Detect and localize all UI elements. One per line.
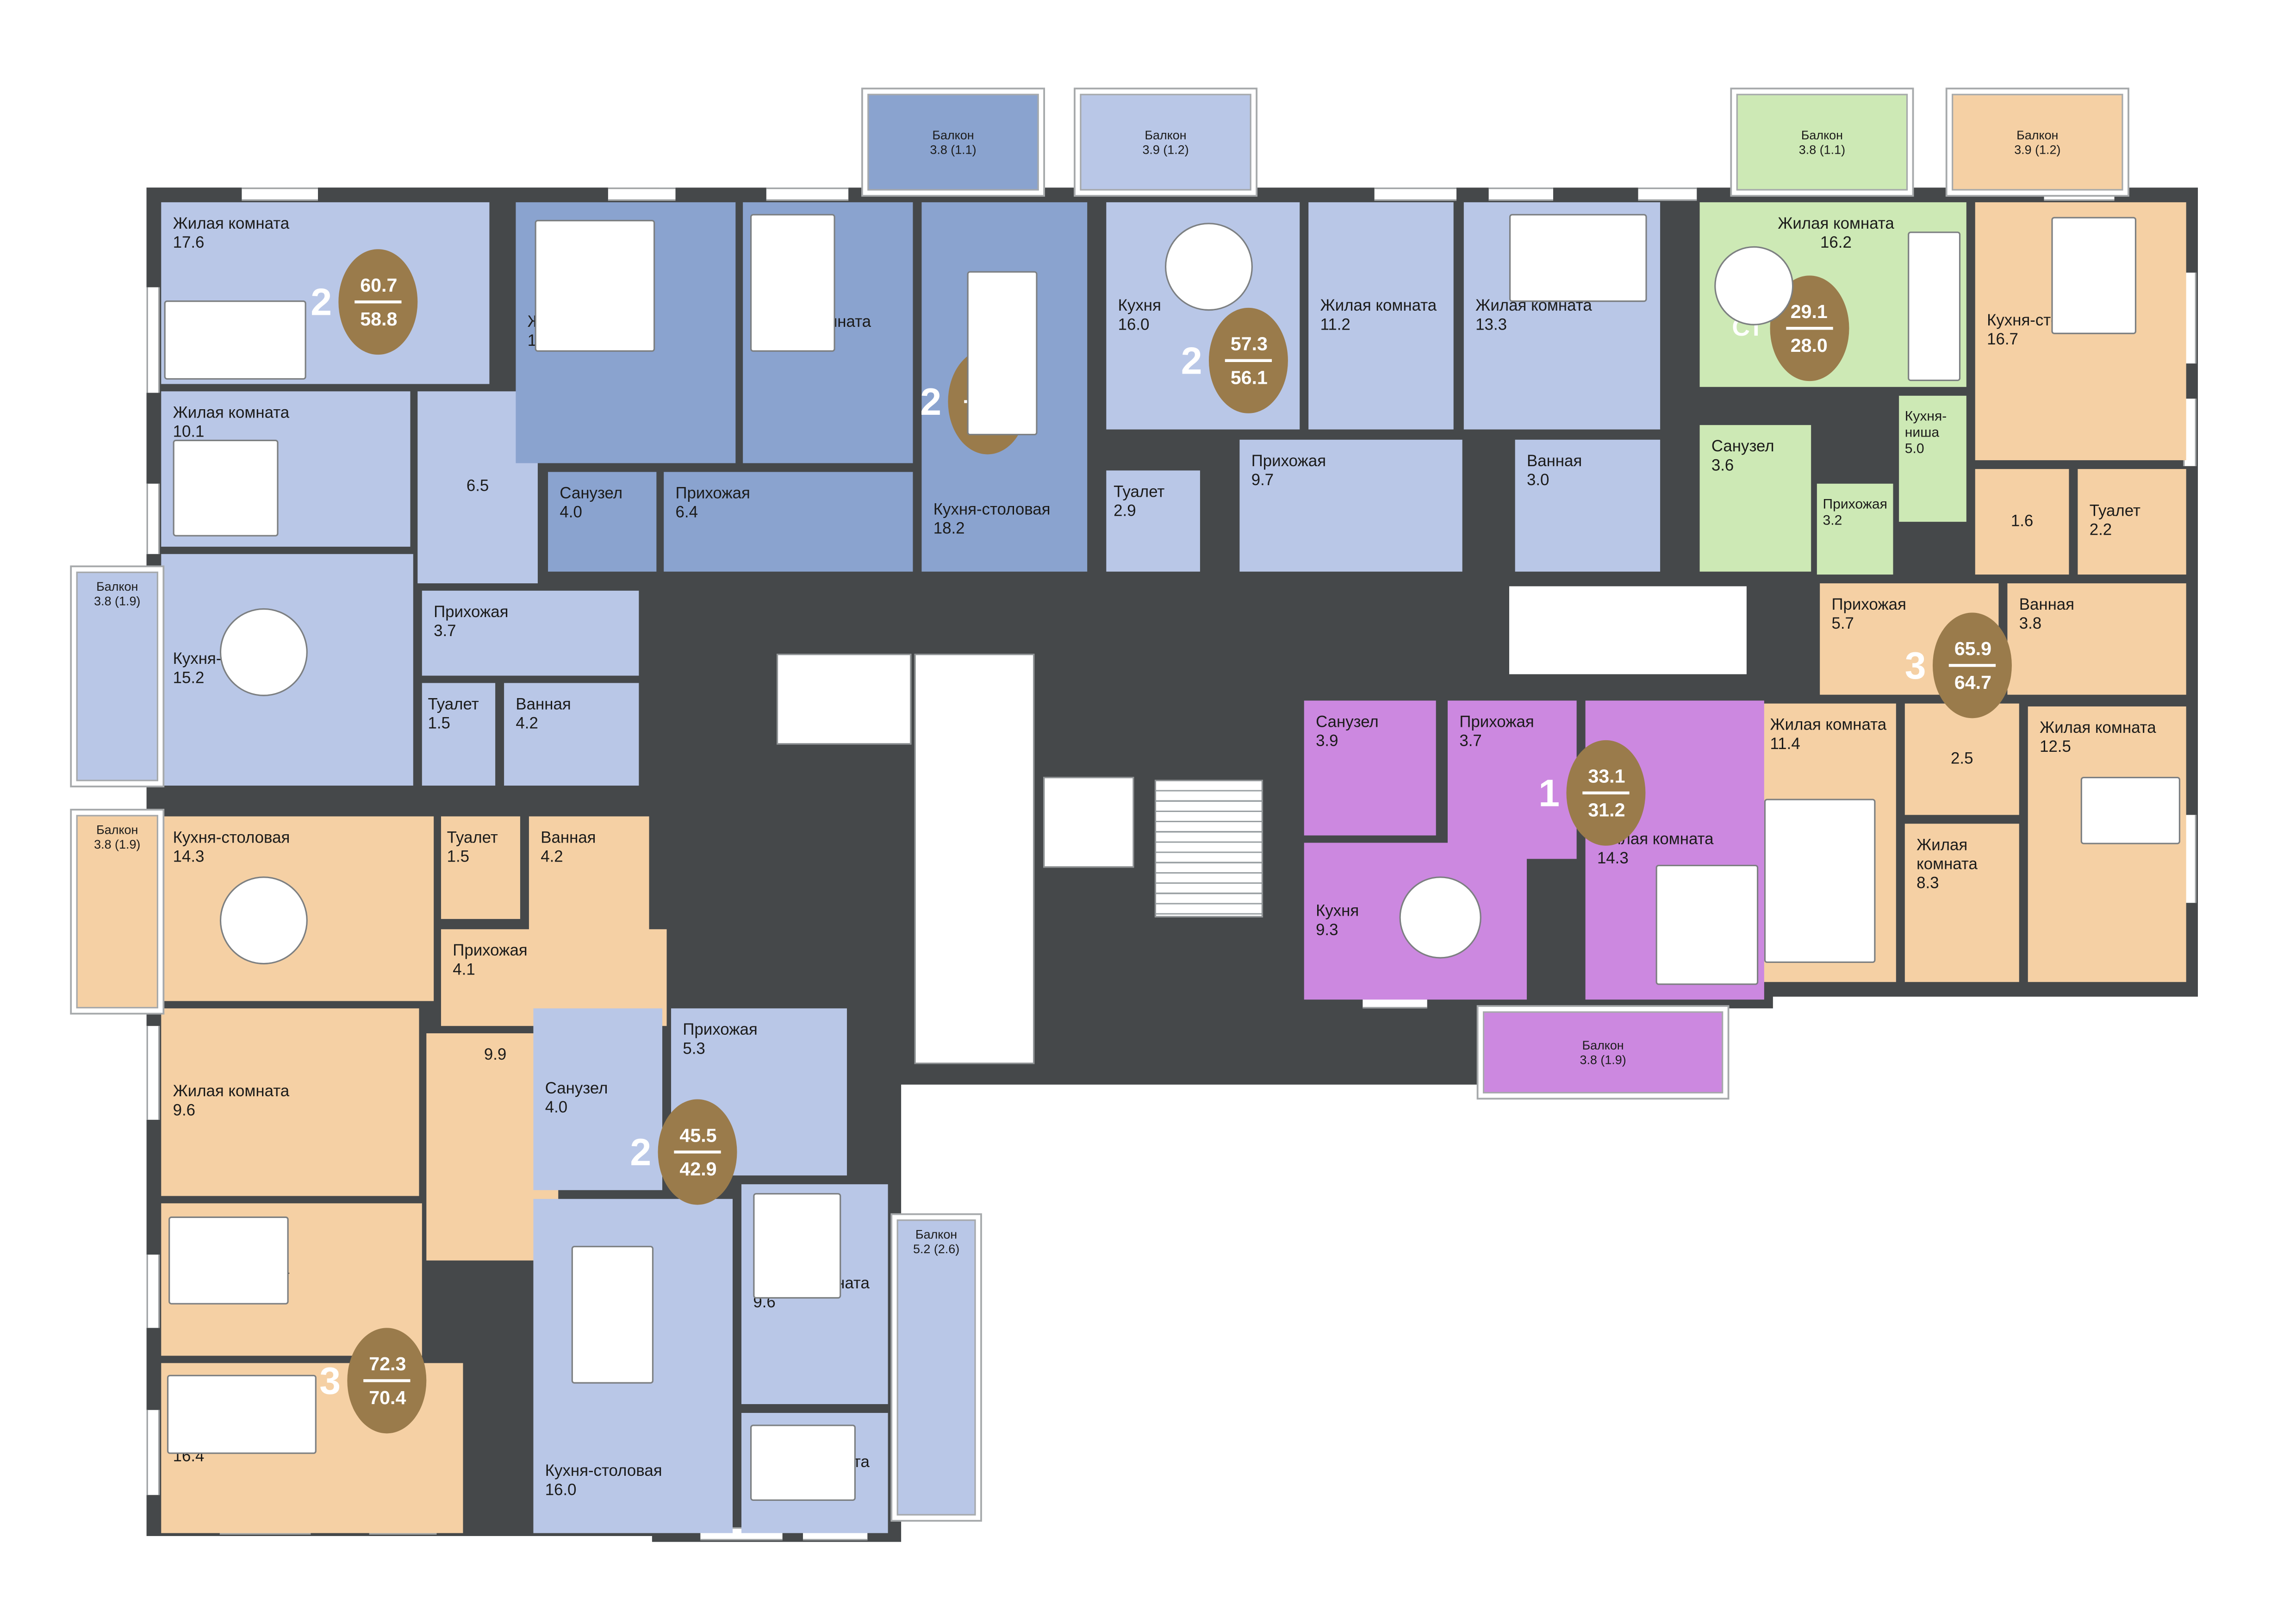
room-area: 3.8 (1.1) bbox=[930, 142, 976, 157]
room-name: Туалет bbox=[2090, 503, 2140, 522]
room-name: Балкон bbox=[2016, 127, 2058, 142]
badge-area-living: 64.7 bbox=[1954, 671, 1991, 693]
room-name: Санузел bbox=[545, 1080, 608, 1099]
apt6-badge: 3 72.3 70.4 bbox=[319, 1328, 427, 1433]
badge-areas: 57.3 56.1 bbox=[1209, 308, 1288, 413]
room-name: Туалет bbox=[428, 696, 479, 715]
core-corridor bbox=[915, 654, 1035, 1064]
room-area: 1.5 bbox=[447, 849, 469, 868]
room-area: 3.9 bbox=[1316, 733, 1338, 752]
apt4-corridor-2-5: 2.5 bbox=[1905, 704, 2019, 815]
room-name: Кухня-столовая bbox=[933, 501, 1051, 520]
apt6-living-room-9-6: Жилая комната 9.6 bbox=[161, 1008, 419, 1196]
room-name: Санузел bbox=[560, 485, 622, 504]
room-name: Прихожая bbox=[1831, 597, 1906, 616]
window bbox=[608, 187, 676, 200]
furniture-dining-table bbox=[1400, 876, 1481, 958]
room-name: Ванная bbox=[516, 696, 571, 715]
room-area: 3.8 (1.9) bbox=[94, 837, 140, 852]
apt0-badge: 2 60.7 58.8 bbox=[311, 249, 418, 355]
furniture-dining-table bbox=[2051, 217, 2136, 334]
furniture-sofa bbox=[1908, 231, 1960, 381]
room-name: Прихожая bbox=[676, 485, 750, 504]
apt3-kitchen-niche-5-0: Кухня-ниша 5.0 bbox=[1899, 396, 1966, 522]
room-area: 1.6 bbox=[2011, 512, 2033, 531]
window bbox=[147, 287, 160, 393]
room-name: Балкон bbox=[1145, 127, 1186, 142]
room-name: Ванная bbox=[1527, 453, 1582, 472]
badge-areas: 60.7 58.8 bbox=[339, 249, 418, 355]
room-area: 16.2 bbox=[1820, 234, 1852, 253]
apt4-balcony: Балкон 3.9 (1.2) bbox=[1952, 94, 2123, 191]
furniture-bed bbox=[753, 1193, 841, 1299]
room-area: 9.3 bbox=[1316, 921, 1338, 940]
room-name: Жилая комната bbox=[1770, 717, 1887, 736]
entrance-vestibule bbox=[777, 654, 911, 744]
badge-area-living: 31.2 bbox=[1588, 799, 1625, 820]
room-name: Прихожая bbox=[434, 604, 508, 623]
room-name: Балкон bbox=[932, 127, 974, 142]
badge-area-total: 29.1 bbox=[1791, 301, 1828, 323]
apt3-hallway-3-2: Прихожая 3.2 bbox=[1817, 484, 1893, 575]
badge-divider bbox=[364, 1380, 411, 1382]
furniture-sofa bbox=[164, 300, 306, 380]
apt0-toilet-1-5: Туалет 1.5 bbox=[422, 683, 495, 786]
room-area: 4.1 bbox=[453, 962, 475, 981]
room-name: Балкон bbox=[1582, 1037, 1624, 1052]
room-area: 3.6 bbox=[1711, 457, 1734, 476]
room-area: 9.9 bbox=[484, 1047, 506, 1066]
room-name: Прихожая bbox=[1823, 497, 1887, 513]
room-name: Жилая комната bbox=[173, 1083, 290, 1102]
room-area: 5.0 bbox=[1905, 442, 1924, 458]
room-name: Ванная bbox=[2019, 597, 2074, 616]
apt2-toilet-2-9: Туалет 2.9 bbox=[1106, 470, 1200, 571]
badge-divider bbox=[355, 301, 402, 303]
badge-areas: 33.1 31.2 bbox=[1567, 740, 1646, 846]
furniture-dining-table bbox=[967, 271, 1038, 436]
window bbox=[147, 1410, 160, 1495]
badge-area-total: 72.3 bbox=[369, 1353, 406, 1375]
badge-room-count: 2 bbox=[311, 279, 332, 325]
apt6-toilet-1-5: Туалет 1.5 bbox=[441, 816, 520, 919]
window bbox=[1489, 187, 1553, 200]
room-area: 3.8 (1.1) bbox=[1799, 142, 1845, 157]
room-area: 5.7 bbox=[1831, 616, 1854, 635]
furniture-bed bbox=[535, 220, 655, 352]
room-area: 11.4 bbox=[1770, 736, 1800, 755]
badge-divider bbox=[675, 1151, 722, 1153]
apt5-balcony: Балкон 3.8 (1.9) bbox=[1483, 1012, 1723, 1093]
furniture-bed bbox=[1509, 214, 1647, 302]
apt1-balcony: Балкон 3.8 (1.1) bbox=[867, 94, 1039, 191]
floor-plan: Жилая комната 17.6 Жилая комната 10.1 6.… bbox=[0, 0, 2296, 1624]
apt4-toilet-2-2: Туалет 2.2 bbox=[2078, 469, 2186, 575]
room-area: 12.5 bbox=[2040, 739, 2071, 758]
furniture-bed bbox=[1656, 865, 1759, 985]
room-area: 11.2 bbox=[1320, 316, 1350, 335]
room-name: Прихожая bbox=[1251, 453, 1326, 472]
window bbox=[147, 1026, 160, 1120]
window bbox=[766, 187, 848, 200]
badge-area-total: 45.5 bbox=[679, 1124, 716, 1146]
apt3-bathroom-3-6: Санузел 3.6 bbox=[1700, 425, 1811, 572]
badge-area-living: 58.8 bbox=[360, 307, 397, 329]
apt3-balcony: Балкон 3.8 (1.1) bbox=[1736, 94, 1908, 191]
room-name: Жилая комната bbox=[1320, 297, 1437, 316]
badge-area-total: 65.9 bbox=[1954, 638, 1991, 660]
apt0-hallway-3-7: Прихожая 3.7 bbox=[422, 591, 639, 676]
room-name: Санузел bbox=[1711, 438, 1774, 457]
room-name: Жилая комната bbox=[2040, 720, 2156, 739]
apt4-living-room-8-3: Жилая комната 8.3 bbox=[1905, 824, 2019, 982]
room-name: Жилая комната bbox=[173, 405, 290, 424]
window bbox=[1375, 187, 1456, 200]
apt5-badge: 1 33.1 31.2 bbox=[1538, 740, 1646, 846]
apt2-badge: 2 57.3 56.1 bbox=[1181, 308, 1289, 413]
room-name: Жилая комната bbox=[173, 215, 290, 234]
room-area: 16.7 bbox=[1987, 331, 2018, 350]
badge-area-total: 33.1 bbox=[1588, 765, 1625, 787]
apt0-bathroom-4-2: Ванная 4.2 bbox=[504, 683, 639, 786]
badge-area-living: 56.1 bbox=[1231, 366, 1268, 388]
room-area: 18.2 bbox=[933, 520, 965, 539]
apt4-corridor-1-6: 1.6 bbox=[1975, 469, 2069, 575]
room-area: 3.9 (1.2) bbox=[2014, 142, 2060, 157]
badge-areas: 72.3 70.4 bbox=[348, 1328, 427, 1433]
furniture-bed bbox=[168, 1217, 289, 1305]
apt7-balcony: Балкон 5.2 (2.6) bbox=[897, 1219, 976, 1516]
badge-area-living: 28.0 bbox=[1791, 334, 1828, 356]
room-area: 1.5 bbox=[428, 715, 450, 734]
apt2-bathroom-3-0: Ванная 3.0 bbox=[1515, 440, 1660, 572]
room-area: 14.3 bbox=[1597, 850, 1629, 869]
room-name: Туалет bbox=[1114, 484, 1164, 503]
apt2-living-room-11-2: Жилая комната 11.2 bbox=[1308, 202, 1453, 430]
room-name: Прихожая bbox=[453, 943, 527, 962]
furniture-bed bbox=[173, 440, 279, 537]
apt6-balcony: Балкон 3.8 (1.9) bbox=[76, 815, 158, 1008]
room-name: Туалет bbox=[447, 830, 498, 849]
room-area: 4.0 bbox=[545, 1099, 567, 1118]
room-area: 4.0 bbox=[560, 504, 582, 523]
room-area: 17.6 bbox=[173, 234, 205, 253]
apt2-hallway-9-7: Прихожая 9.7 bbox=[1239, 440, 1462, 572]
room-area: 3.7 bbox=[434, 623, 456, 642]
badge-area-total: 60.7 bbox=[360, 275, 397, 296]
room-name: Санузел bbox=[1316, 714, 1379, 733]
apt4-badge: 3 65.9 64.7 bbox=[1905, 612, 2013, 718]
room-name: Ванная bbox=[541, 830, 596, 849]
furniture-dining-table bbox=[1714, 246, 1793, 325]
room-name: Жилая комната bbox=[1778, 215, 1894, 234]
badge-divider bbox=[1583, 792, 1630, 794]
badge-room-count: 2 bbox=[920, 379, 941, 424]
room-area: 3.8 (1.9) bbox=[94, 593, 140, 608]
badge-room-count: 2 bbox=[630, 1129, 651, 1174]
room-area: 14.3 bbox=[173, 849, 205, 868]
room-area: 3.9 (1.2) bbox=[1142, 142, 1188, 157]
room-area: 16.0 bbox=[545, 1482, 577, 1501]
apt1-hallway-6-4: Прихожая 6.4 bbox=[664, 472, 913, 571]
badge-room-count: 3 bbox=[1905, 643, 1926, 688]
furniture-bed bbox=[1764, 799, 1876, 963]
room-name: Кухня-ниша bbox=[1905, 409, 1960, 442]
apt7-badge: 2 45.5 42.9 bbox=[630, 1099, 738, 1205]
room-name: Балкон bbox=[915, 1227, 957, 1242]
room-area: 15.2 bbox=[173, 670, 205, 689]
furniture-sofa bbox=[750, 1424, 856, 1501]
furniture-sofa bbox=[750, 214, 835, 352]
room-area: 2.2 bbox=[2090, 522, 2112, 541]
room-name: Кухня bbox=[1118, 297, 1161, 316]
room-area: 3.7 bbox=[1459, 733, 1481, 752]
room-name: Жилая комната bbox=[1916, 837, 2013, 875]
room-name: Прихожая bbox=[1459, 714, 1534, 733]
badge-areas: 65.9 64.7 bbox=[1933, 612, 2012, 718]
room-area: 4.2 bbox=[541, 849, 563, 868]
room-area: 4.2 bbox=[516, 715, 538, 734]
room-name: Кухня bbox=[1316, 902, 1359, 921]
badge-divider bbox=[1786, 327, 1832, 330]
room-name: Балкон bbox=[96, 822, 138, 837]
elevator bbox=[1043, 777, 1134, 868]
room-area: 3.0 bbox=[1527, 472, 1549, 491]
room-area: 5.3 bbox=[683, 1041, 705, 1060]
badge-room-count: 1 bbox=[1538, 770, 1560, 816]
badge-room-count: 3 bbox=[319, 1358, 341, 1403]
badge-area-living: 70.4 bbox=[369, 1386, 406, 1408]
apt0-balcony: Балкон 3.8 (1.9) bbox=[76, 572, 158, 781]
badge-area-total: 57.3 bbox=[1231, 333, 1268, 355]
badge-divider bbox=[1226, 359, 1272, 362]
room-name: Балкон bbox=[96, 579, 138, 594]
apt6-bathroom-4-2: Ванная 4.2 bbox=[529, 816, 649, 939]
room-area: 3.8 (1.9) bbox=[1580, 1052, 1626, 1067]
window bbox=[147, 1255, 160, 1328]
staircase bbox=[1155, 780, 1263, 918]
room-area: 13.3 bbox=[1475, 316, 1507, 335]
badge-divider bbox=[1949, 664, 1996, 667]
room-area: 9.7 bbox=[1251, 472, 1274, 491]
room-area: 5.2 (2.6) bbox=[913, 1242, 959, 1256]
badge-area-living: 42.9 bbox=[679, 1157, 716, 1179]
badge-room-count: 2 bbox=[1181, 338, 1202, 383]
room-area: 16.0 bbox=[1118, 316, 1150, 335]
room-area: 3.2 bbox=[1823, 513, 1842, 530]
room-name: Кухня-столовая bbox=[173, 830, 290, 849]
room-area: 8.3 bbox=[1916, 875, 1939, 894]
room-area: 9.6 bbox=[173, 1102, 195, 1121]
room-name: Балкон bbox=[1801, 127, 1843, 142]
room-area: 3.8 bbox=[2019, 616, 2041, 635]
furniture-desk bbox=[2081, 777, 2180, 844]
furniture-dining-table bbox=[220, 876, 308, 964]
room-name: Кухня-столовая bbox=[545, 1463, 662, 1482]
furniture-dining-table bbox=[220, 608, 308, 696]
room-area: 2.9 bbox=[1114, 503, 1136, 522]
room-name: Прихожая bbox=[683, 1022, 757, 1041]
room-area: 6.4 bbox=[676, 504, 698, 523]
apt5-bathroom-3-9: Санузел 3.9 bbox=[1304, 700, 1436, 835]
badge-areas: 45.5 42.9 bbox=[659, 1099, 738, 1205]
furniture-dining-table bbox=[1165, 223, 1253, 311]
room-area: 2.5 bbox=[1951, 750, 1973, 768]
apt2-balcony: Балкон 3.9 (1.2) bbox=[1080, 94, 1251, 191]
apt4-bathroom-3-8: Ванная 3.8 bbox=[2007, 583, 2186, 695]
window bbox=[147, 484, 160, 554]
window bbox=[1638, 187, 1697, 200]
furniture-sofa bbox=[167, 1375, 317, 1454]
furniture-dining-table bbox=[572, 1246, 653, 1384]
apt1-bathroom-4-0: Санузел 4.0 bbox=[548, 472, 656, 571]
window bbox=[242, 187, 318, 200]
room-area: 6.5 bbox=[467, 478, 489, 497]
